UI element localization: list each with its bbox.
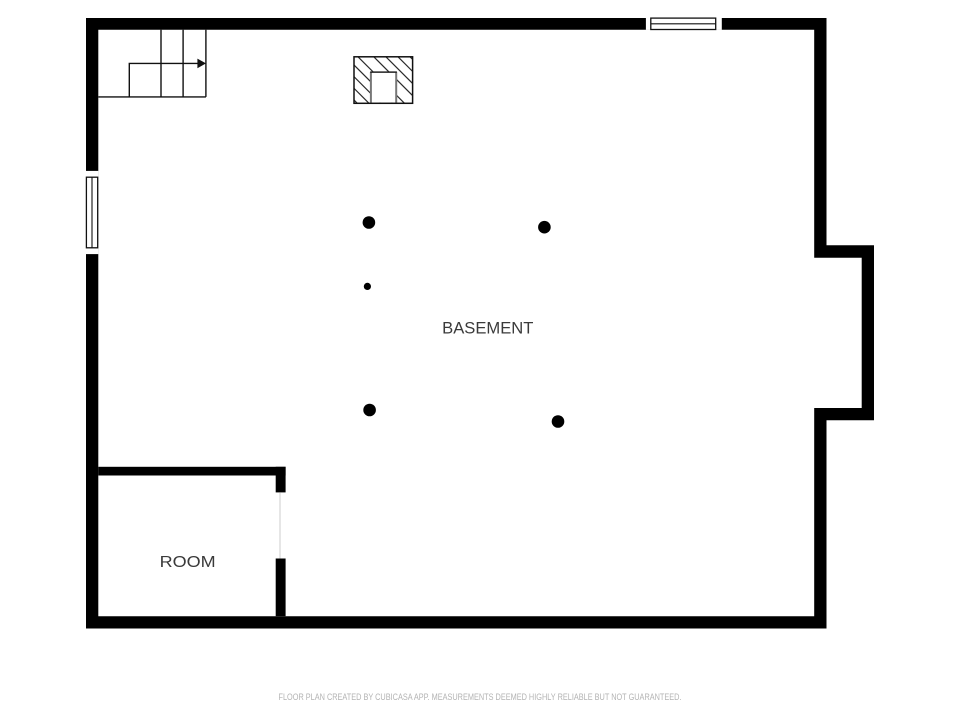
svg-text:ROOM: ROOM (160, 554, 216, 571)
svg-text:FLOOR PLAN CREATED BY CUBICASA: FLOOR PLAN CREATED BY CUBICASA APP. MEAS… (279, 692, 682, 702)
svg-text:BASEMENT: BASEMENT (442, 318, 533, 337)
